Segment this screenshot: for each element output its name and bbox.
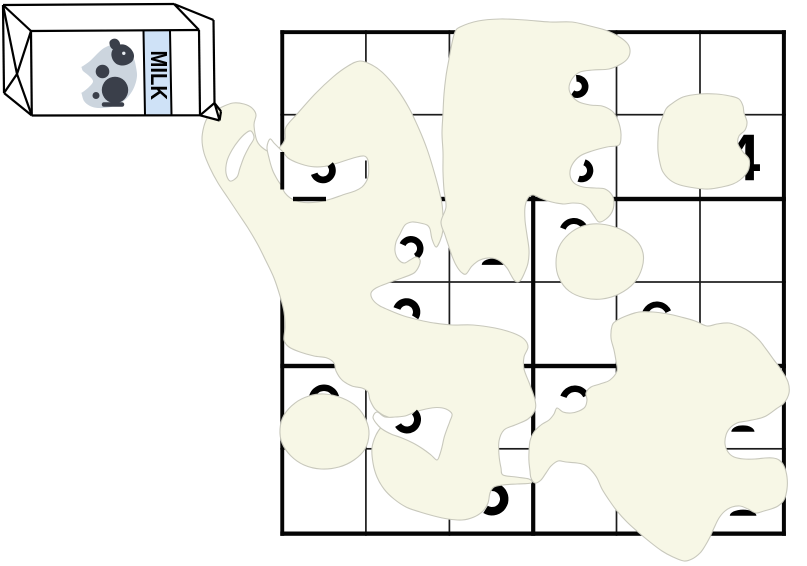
svg-text:MILK: MILK: [146, 51, 173, 101]
